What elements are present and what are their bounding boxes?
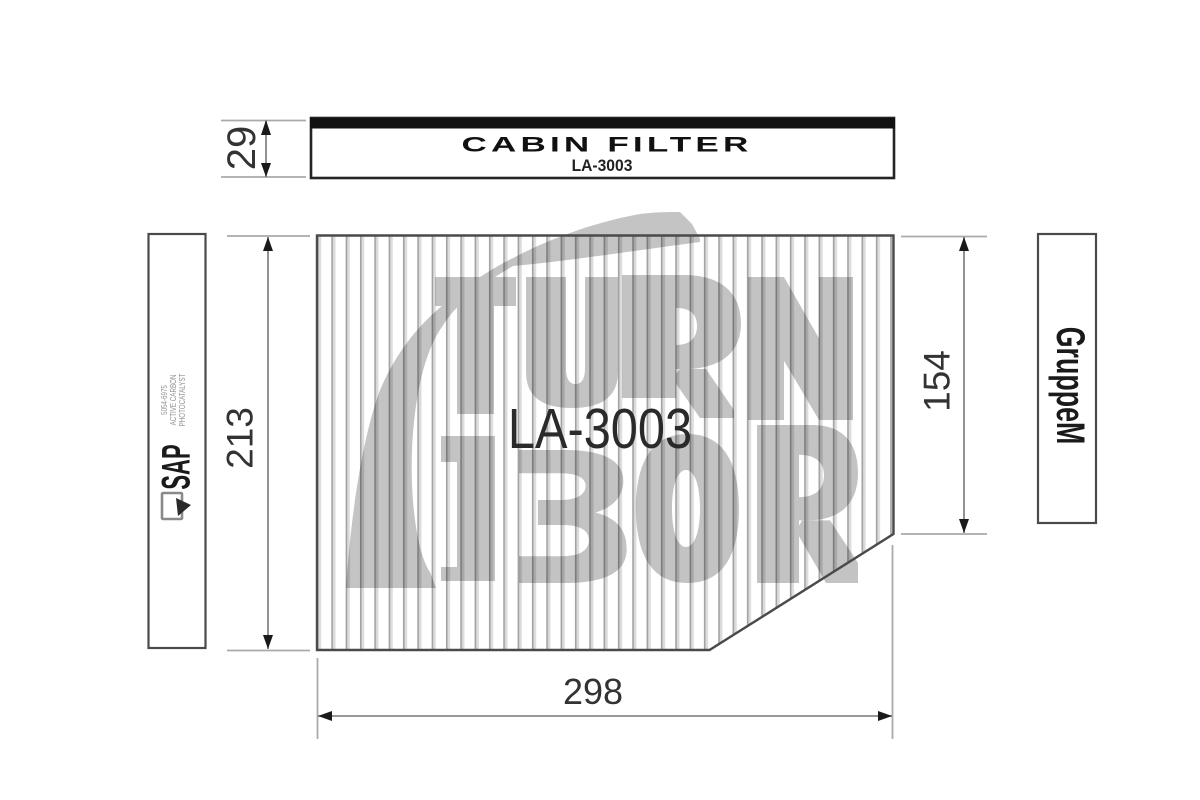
svg-text:CABIN FILTER: CABIN FILTER xyxy=(462,133,753,156)
svg-text:298: 298 xyxy=(563,671,623,712)
svg-text:213: 213 xyxy=(220,407,261,469)
svg-text:ACTIVE CARBON: ACTIVE CARBON xyxy=(169,375,178,426)
svg-text:GruppeM: GruppeM xyxy=(1048,327,1093,445)
svg-text:5054-6975: 5054-6975 xyxy=(160,385,169,415)
svg-text:PHOTOCATALYST: PHOTOCATALYST xyxy=(178,373,187,426)
svg-text:154: 154 xyxy=(917,350,958,412)
svg-text:SAP: SAP xyxy=(154,444,199,489)
svg-text:LA-3003: LA-3003 xyxy=(572,156,633,175)
svg-text:29: 29 xyxy=(220,126,264,171)
svg-text:LA-3003: LA-3003 xyxy=(508,397,692,460)
